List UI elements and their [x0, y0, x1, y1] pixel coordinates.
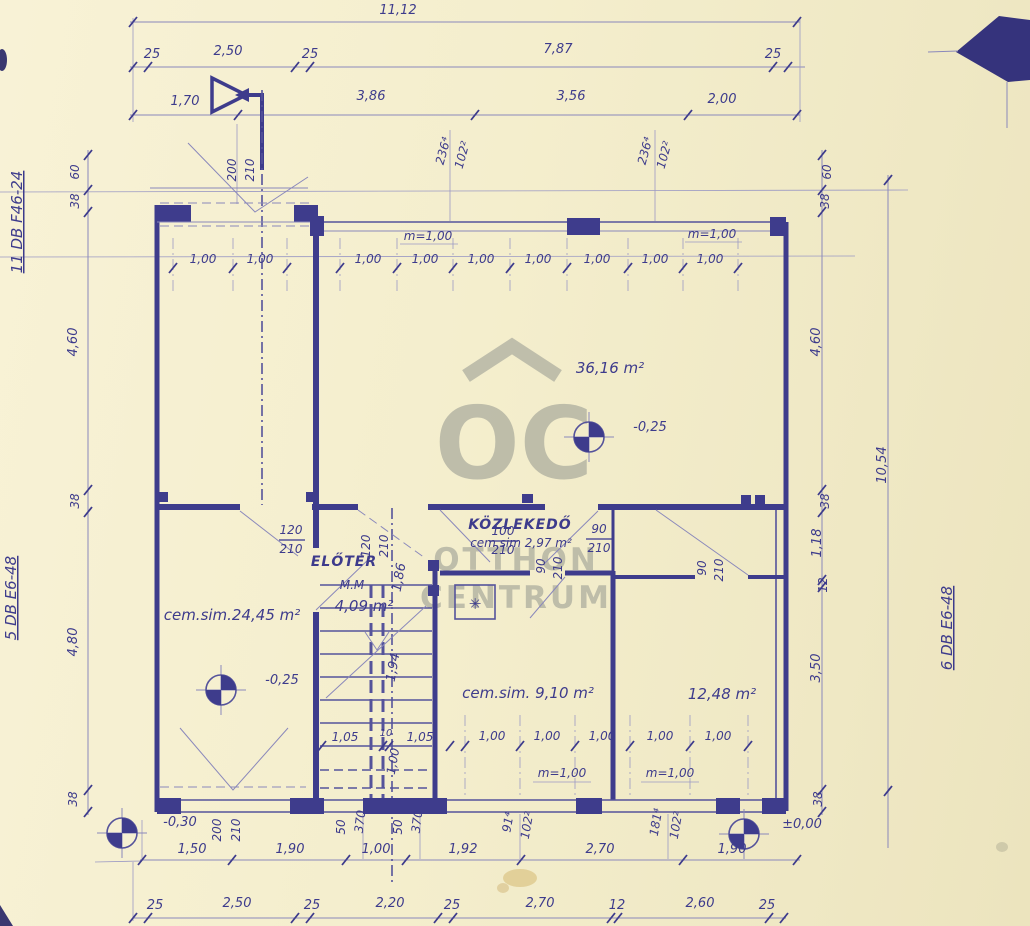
dim-label: 3,50: [809, 654, 824, 683]
dim-label: 2,50: [223, 896, 252, 911]
dim-label: 1,00: [479, 729, 506, 743]
stair-direction-line: [326, 606, 426, 698]
dim-label: 90: [695, 560, 709, 576]
dim-label: 102²: [667, 810, 686, 840]
dim-label: 102²: [452, 140, 473, 171]
dim-label: 236⁴: [433, 136, 454, 167]
dim-label: 1,00: [412, 252, 439, 266]
dim-label: 25: [302, 47, 319, 62]
level-label: -0,25: [633, 420, 667, 435]
dim-label: 38: [66, 791, 80, 807]
dim-label: 10,54: [875, 446, 890, 483]
dim-label: 2,50: [214, 44, 243, 59]
dim-label: 1,90: [718, 842, 747, 857]
dim-label: 38: [68, 493, 82, 509]
dim-label: 200: [210, 818, 224, 841]
dim-label: 38: [818, 193, 832, 209]
dim-label: 1,00: [190, 252, 217, 266]
dim-label: 120: [359, 534, 373, 557]
dim-label: 1,05: [407, 730, 434, 744]
dim-label: 102²: [518, 810, 537, 840]
stain: [503, 869, 537, 887]
dim-label: 2,70: [526, 896, 555, 911]
dim-label: 1,00: [525, 252, 552, 266]
dim-label: 2,00: [708, 92, 737, 107]
dim-label: 370: [409, 809, 426, 834]
dim-label: 210: [377, 534, 391, 557]
level-label: ±0,00: [782, 817, 822, 832]
watermark-word2: CENTRUM: [420, 580, 612, 616]
dim-label: 1,18: [810, 529, 825, 558]
room-label: 4,09 m²: [335, 597, 394, 615]
dim-label: 60: [68, 164, 82, 180]
dimension-tick: [446, 741, 454, 751]
dim-label: 90: [591, 522, 607, 536]
dim-label: 25: [304, 898, 321, 913]
room-label: cem.sim.24,45 m²: [164, 606, 301, 624]
dim-label: 2,60: [686, 896, 715, 911]
dim-label: cem.sim 2,97 m²: [470, 536, 572, 550]
dim-label: M.M: [340, 578, 365, 592]
stair-direction-arrow: [365, 632, 389, 650]
stove-icon: ✳: [469, 595, 482, 613]
side-note-left-bottom: 5 DB E6-48: [2, 556, 20, 640]
dim-label: 4,60: [809, 328, 824, 357]
dim-label: m=1,00: [538, 766, 587, 780]
level-label: -0,25: [265, 673, 299, 688]
dim-label: m=1,00: [688, 227, 737, 241]
dim-label: 11,12: [379, 3, 416, 18]
dim-label: 1,00: [384, 747, 402, 776]
dim-label: 1,00: [589, 729, 616, 743]
dim-label: 236⁴: [635, 136, 656, 167]
dim-label: 1,00: [355, 252, 382, 266]
dim-label: 1,94: [384, 652, 404, 683]
dim-label: 1,00: [534, 729, 561, 743]
dim-label: 1,05: [332, 730, 359, 744]
dim-label: 210: [280, 542, 303, 556]
dim-label: 200: [225, 158, 239, 181]
dim-label: 2,70: [586, 842, 615, 857]
dim-label: 1,00: [647, 729, 674, 743]
dim-label: 100: [492, 524, 515, 538]
dim-label: 2,20: [376, 896, 405, 911]
room-label: KÖZLEKEDŐ: [468, 515, 571, 533]
dim-label: 1,00: [642, 252, 669, 266]
dim-label: 38: [818, 493, 832, 509]
dim-label: 3,56: [557, 89, 586, 104]
top-window-mullions: [173, 218, 738, 237]
dim-label: 1,00: [705, 729, 732, 743]
dim-label: 25: [144, 47, 161, 62]
room-label: 12,48 m²: [688, 685, 756, 703]
floor-plan-canvas: OC OTTHON CENTRUM: [0, 0, 1030, 926]
dim-label: 210: [229, 818, 243, 841]
room-label: 36,16 m²: [576, 359, 644, 377]
dim-label: 4,80: [66, 628, 81, 657]
corner-smudge: [0, 905, 13, 926]
stain: [497, 883, 509, 893]
dim-label: 210: [551, 556, 565, 579]
dim-label: 1,00: [362, 842, 391, 857]
dim-label: 12: [816, 577, 830, 592]
room-label: cem.sim. 9,10 m²: [462, 684, 594, 702]
dim-label: 50: [334, 819, 348, 835]
dim-label: 210: [243, 158, 257, 181]
dim-label: 1,70: [171, 94, 200, 109]
stain: [996, 842, 1008, 852]
level-label: -0,30: [163, 815, 197, 830]
dim-label: 210: [492, 543, 515, 557]
watermark-monogram: OC: [435, 385, 593, 502]
watermark-roof-icon: [466, 346, 558, 376]
dim-label: 25: [147, 898, 164, 913]
dim-label: 1,50: [178, 842, 207, 857]
edge-smudge: [0, 49, 7, 71]
dim-label: 12: [609, 898, 626, 913]
window-centerlines: [173, 238, 748, 797]
dim-label: 38: [811, 791, 825, 807]
dim-label: 25: [444, 898, 461, 913]
dim-label: 25: [759, 898, 776, 913]
dim-label: 210: [712, 558, 726, 581]
dim-label: 50: [391, 819, 405, 835]
scanned-floor-plan-page: OC OTTHON CENTRUM: [0, 0, 1030, 926]
dim-label: 60: [820, 164, 834, 180]
level-marker: -0,25: [196, 665, 299, 715]
corner-fold-mark: [956, 16, 1030, 82]
corner-crosshair-h: [928, 51, 958, 52]
dim-label: m=1,00: [404, 229, 453, 243]
dim-label: 1,90: [276, 842, 305, 857]
dim-label: 120: [280, 523, 303, 537]
dim-label: 1,00: [584, 252, 611, 266]
dim-label: 1,92: [449, 842, 478, 857]
section-mark: [212, 78, 392, 882]
dim-label: 4,60: [66, 328, 81, 357]
side-note-right: 6 DB E6-48: [938, 586, 956, 670]
dim-label: 102²: [654, 140, 675, 171]
dim-label: 7,87: [544, 42, 574, 57]
dim-label: 3,86: [357, 89, 386, 104]
staircase: [320, 585, 432, 798]
dim-label: 370: [352, 809, 369, 834]
veranda-glazing-lines: [180, 728, 288, 790]
dim-label: 1,00: [697, 252, 724, 266]
dim-label: 1,00: [468, 252, 495, 266]
dim-label: 210: [588, 541, 611, 555]
dim-label: 91⁴: [499, 811, 516, 833]
dim-label: 1,00: [247, 252, 274, 266]
dim-label: 10: [380, 728, 393, 739]
dim-label: 90: [534, 558, 548, 574]
dim-label: m=1,00: [646, 766, 695, 780]
dim-label: 25: [765, 47, 782, 62]
side-note-left-top: 11 DB F46-24: [8, 171, 26, 274]
dim-label: 38: [68, 193, 82, 209]
